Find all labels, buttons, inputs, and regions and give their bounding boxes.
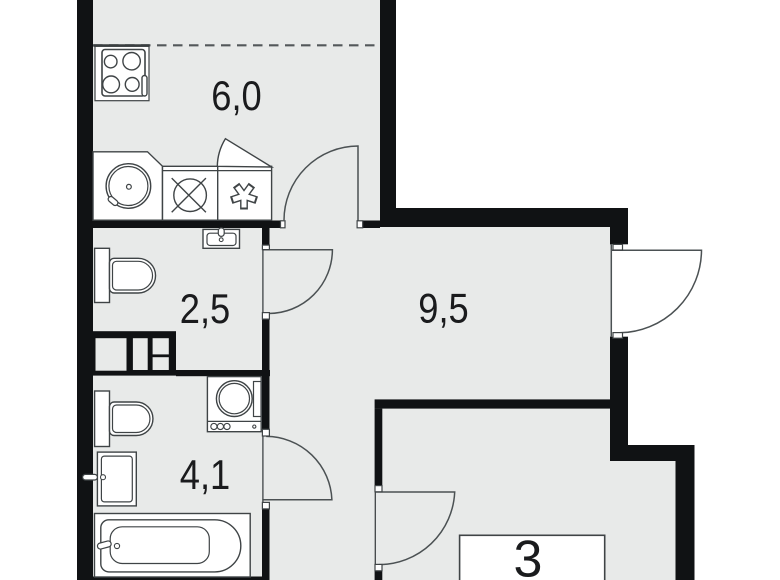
svg-text:9,5: 9,5 <box>418 284 469 331</box>
svg-text:4,1: 4,1 <box>180 451 231 498</box>
svg-text:3: 3 <box>514 531 543 580</box>
svg-text:2,5: 2,5 <box>180 285 231 332</box>
svg-text:6,0: 6,0 <box>211 72 262 119</box>
